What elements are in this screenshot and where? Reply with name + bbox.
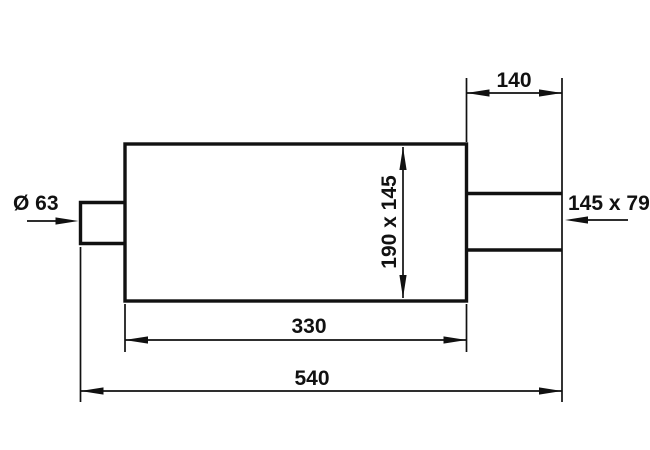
inlet-diameter-label: Ø 63: [13, 192, 59, 215]
outlet-pipe-outline: [467, 194, 563, 251]
body-cross-section-value: 190 x 145: [378, 175, 401, 269]
arrowhead-left-icon: [125, 336, 148, 343]
arrowhead-right-icon: [444, 336, 467, 343]
arrowhead-right-icon: [539, 89, 562, 96]
body-length-value: 330: [291, 315, 326, 338]
arrowhead-up-icon: [399, 147, 406, 170]
overall-length-value: 540: [294, 367, 329, 390]
outlet-length-value: 140: [496, 69, 531, 92]
arrowhead-left-icon: [467, 89, 490, 96]
muffler-body-outline: [125, 144, 467, 301]
arrowhead-down-icon: [399, 275, 406, 298]
muffler-outline: [81, 144, 563, 301]
callout-inlet-diameter: Ø 63: [13, 192, 79, 225]
outlet-size-label: 145 x 79: [568, 192, 650, 215]
inlet-arrowhead-icon: [56, 217, 79, 224]
inlet-pipe-outline: [81, 203, 126, 244]
callout-outlet-size: 145 x 79: [565, 192, 650, 224]
drawing-canvas: 140 Ø 63 145 x 79 190 x 145: [0, 0, 650, 450]
dimension-body-length: 330: [125, 304, 467, 352]
technical-drawing: 140 Ø 63 145 x 79 190 x 145: [0, 0, 650, 450]
arrowhead-left-icon: [81, 387, 104, 394]
dimension-outlet-length: 140: [467, 69, 563, 402]
outlet-arrowhead-icon: [565, 216, 588, 223]
dimension-body-cross-section: 190 x 145: [378, 147, 407, 298]
arrowhead-right-icon: [539, 387, 562, 394]
